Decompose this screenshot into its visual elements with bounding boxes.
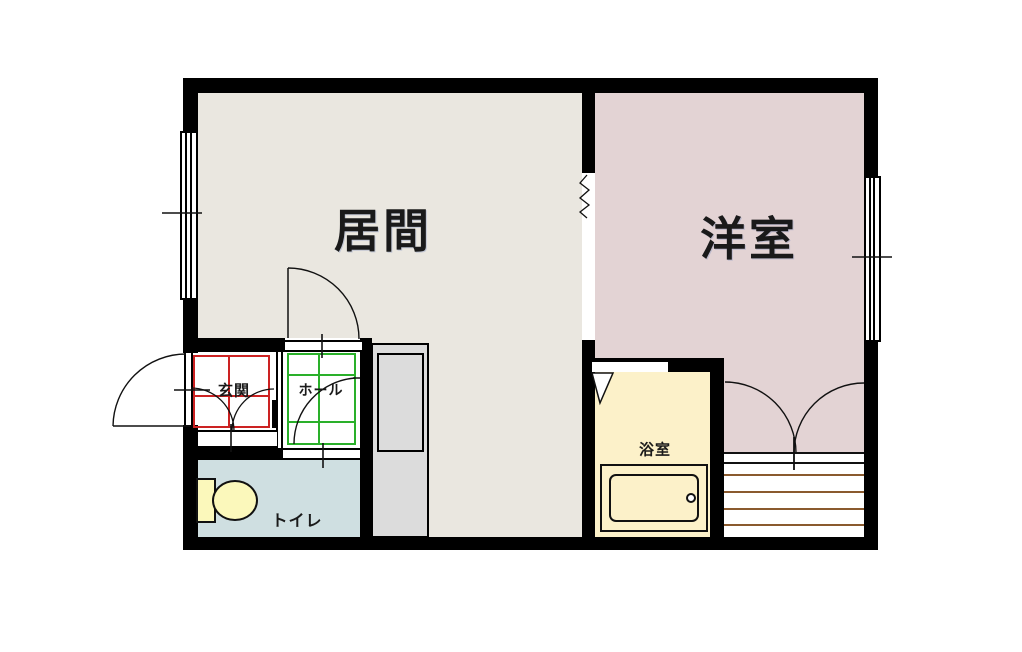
floor-plan-canvas: 居間 洋室 玄関 ホール トイレ 浴室 [0,0,1022,652]
closet-shelf-line [724,474,864,476]
room-label-living: 居間 [334,208,432,254]
toilet-bowl-icon [212,480,258,521]
wall-bottom [183,537,878,550]
wall-bath-closet [710,358,724,537]
room-label-western: 洋室 [700,216,798,262]
window-right-icon [864,176,881,342]
room-label-toilet: トイレ [271,514,322,530]
entrance-hall-divider [276,352,283,448]
entrance-door-swing-arc [113,354,186,426]
toilet-doorway-threshold [283,448,360,460]
wall-right-upper [864,78,878,176]
counter-unit-top [377,353,424,452]
bathroom-door-opening [592,362,668,372]
wall-living-entrance [183,338,285,352]
room-label-bath: 浴室 [639,443,671,458]
hall-tile-grid [287,353,356,445]
closet-shelf-line [724,524,864,526]
wall-top [183,78,878,93]
western-room-floor-closet-side [724,358,864,452]
room-label-entrance: 玄関 [218,384,250,399]
room-label-hall: ホール [299,383,344,397]
wall-partition-upper [582,93,595,173]
window-left-icon [180,131,198,300]
wall-left-upper [183,78,198,131]
wall-right-lower [864,338,878,550]
entrance-step [198,430,277,448]
closet-shelf-line [724,508,864,510]
bathtub-drain-icon [686,493,696,503]
entrance-door-jamb [184,353,193,425]
closet-shelf-line [724,491,864,493]
living-doorway-threshold [285,340,362,352]
closet-door-track [724,452,864,464]
wall-entrance-toilet [183,448,283,460]
